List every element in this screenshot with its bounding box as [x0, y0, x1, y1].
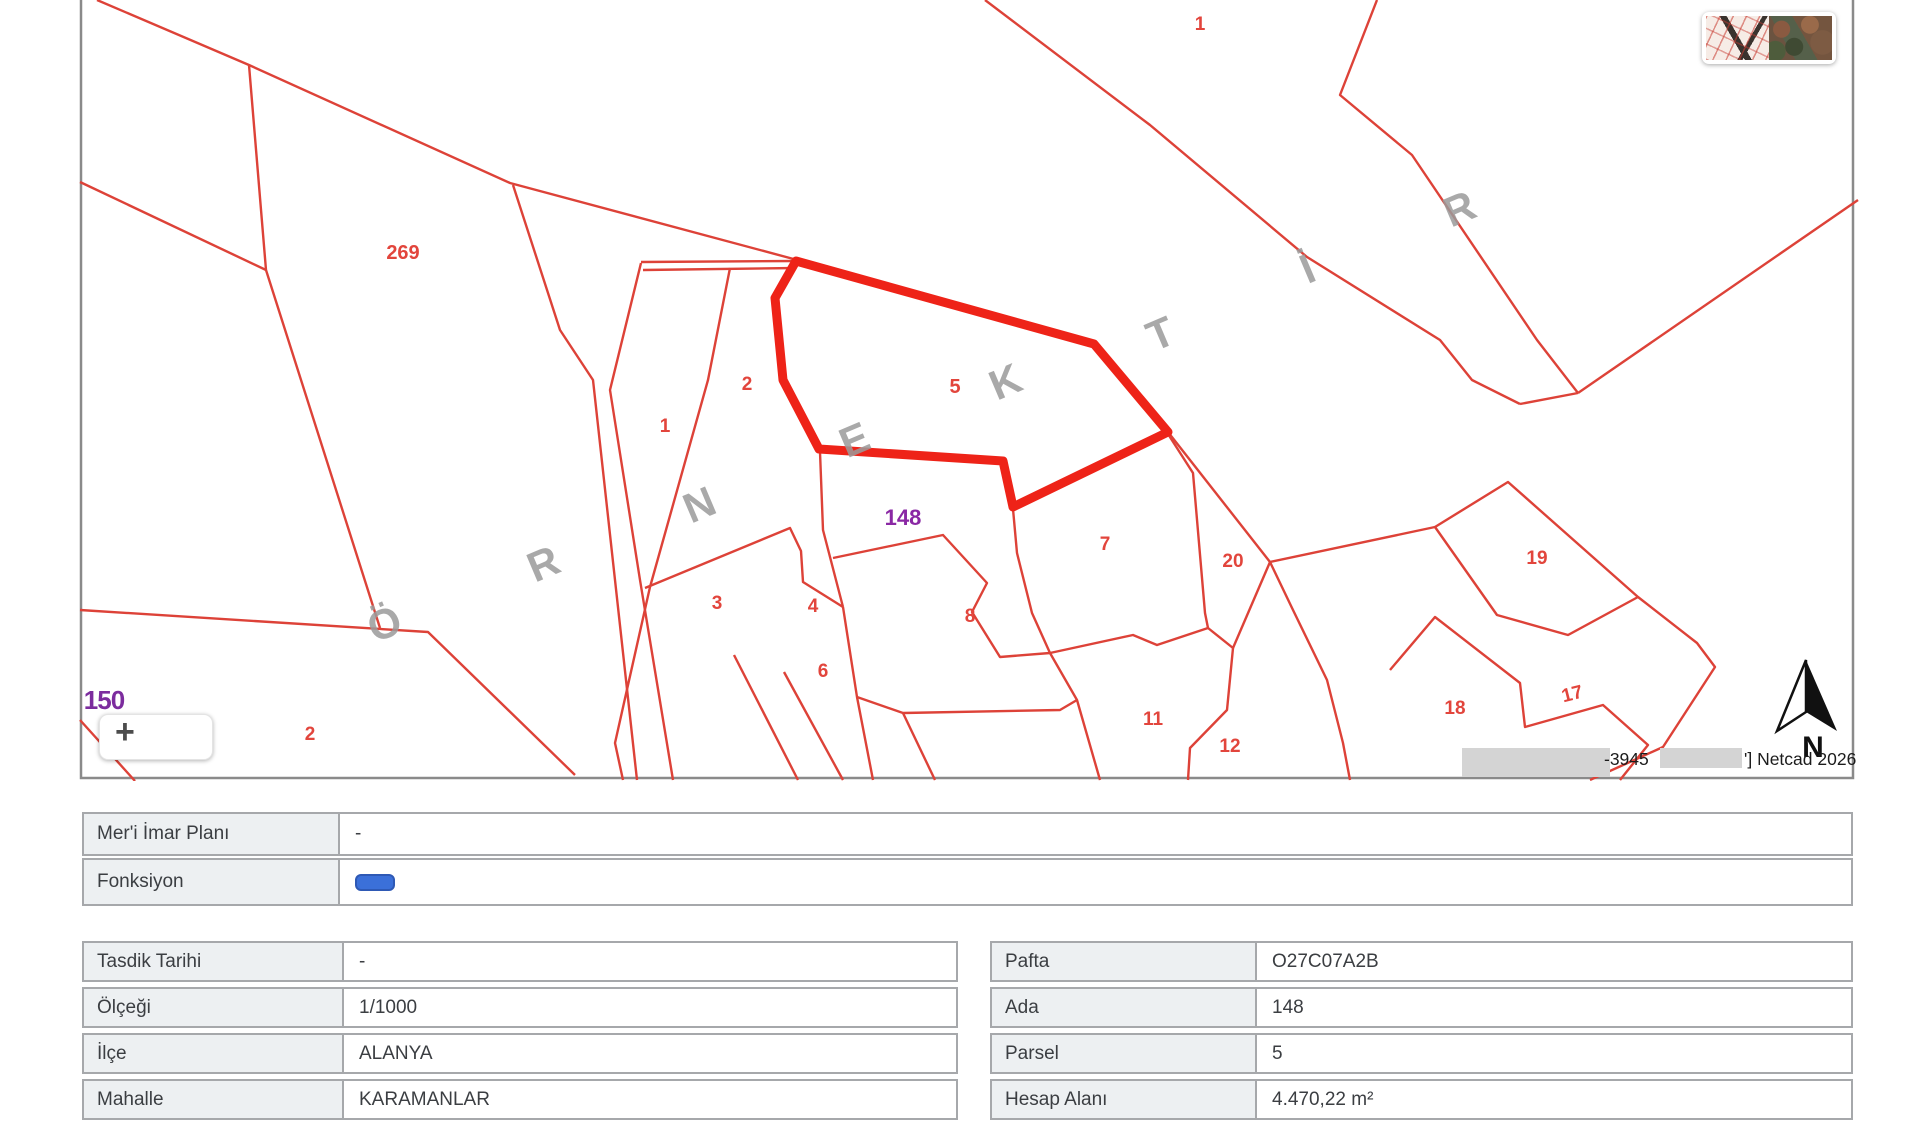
olcegi-label: Ölçeği — [84, 989, 344, 1026]
table-row: Mahalle KARAMANLAR — [82, 1079, 958, 1120]
map-attribution: -3945 '] Netcad 2026 — [1462, 748, 1856, 777]
fonksiyon-badge[interactable] — [355, 874, 395, 891]
ornektir-watermark: Ö R N E K T İ R — [360, 181, 1482, 652]
pafta-value: O27C07A2B — [1257, 943, 1851, 980]
thumbnail-satellite-half — [1769, 16, 1832, 60]
highlighted-parcel-5[interactable] — [775, 261, 1168, 507]
basemap-toggle-thumbnail[interactable] — [1702, 12, 1836, 64]
parsel-value: 5 — [1257, 1035, 1851, 1072]
table-row: İlçe ALANYA — [82, 1033, 958, 1074]
pafta-label: Pafta — [992, 943, 1257, 980]
parcel-label-20: 20 — [1222, 551, 1243, 572]
ilce-label: İlçe — [84, 1035, 344, 1072]
mahalle-value: KARAMANLAR — [344, 1081, 956, 1118]
watermark-letter: İ — [1293, 245, 1322, 293]
table-row: Ölçeği 1/1000 — [82, 987, 958, 1028]
fonksiyon-row-label: Fonksiyon — [84, 860, 340, 904]
attribution-netcad: '] Netcad 2026 — [1744, 749, 1856, 769]
watermark-letter: E — [832, 413, 876, 467]
olcegi-value: 1/1000 — [344, 989, 956, 1026]
mahalle-label: Mahalle — [84, 1081, 344, 1118]
hesap-alani-value: 4.470,22 m² — [1257, 1081, 1851, 1118]
watermark-letter: K — [982, 354, 1028, 409]
plan-row-label: Mer'i İmar Planı — [84, 814, 340, 854]
parcel-label-1-top-right: 1 — [1195, 14, 1206, 35]
parcel-label-3: 3 — [712, 593, 723, 614]
table-row: Fonksiyon — [82, 858, 1853, 906]
watermark-letter: T — [1139, 307, 1181, 360]
parcel-number-labels: 269 1 2 2 3 4 5 6 7 8 20 11 12 19 17 18 … — [305, 14, 1585, 757]
parcel-label-11: 11 — [1143, 709, 1164, 730]
cadastral-map[interactable]: Ö R N E K T İ R 269 1 2 2 3 4 5 6 7 8 20… — [0, 0, 1920, 781]
ada-label-150: 150 — [84, 685, 125, 715]
parcel-label-19: 19 — [1526, 548, 1547, 569]
ilce-value: ALANYA — [344, 1035, 956, 1072]
parcel-label-5: 5 — [949, 376, 960, 398]
parcel-label-18: 18 — [1444, 698, 1465, 719]
table-row: Pafta O27C07A2B — [990, 941, 1853, 982]
table-row: Parsel 5 — [990, 1033, 1853, 1074]
table-row: Hesap Alanı 4.470,22 m² — [990, 1079, 1853, 1120]
parcel-label-2b: 2 — [305, 724, 316, 745]
ada-value: 148 — [1257, 989, 1851, 1026]
parcel-label-4: 4 — [808, 596, 819, 617]
parcel-label-7: 7 — [1100, 534, 1111, 555]
watermark-letter: R — [520, 536, 566, 591]
parcel-label-8: 8 — [965, 606, 976, 627]
watermark-letter: N — [676, 477, 722, 532]
watermark-letter: R — [1436, 181, 1482, 236]
tasdik-tarihi-value: - — [344, 943, 956, 980]
parcel-inquiry-page: Ö R N E K T İ R 269 1 2 2 3 4 5 6 7 8 20… — [0, 0, 1920, 1132]
table-row: Tasdik Tarihi - — [82, 941, 958, 982]
tasdik-tarihi-label: Tasdik Tarihi — [84, 943, 344, 980]
parcel-boundary-lines — [80, 0, 1858, 781]
plus-icon: + — [115, 713, 135, 752]
attribution-coordinate: -3945 — [1604, 749, 1649, 769]
map-frame-border — [81, 0, 1853, 778]
zoom-in-button[interactable]: + — [99, 714, 213, 760]
parcel-label-1: 1 — [660, 416, 671, 437]
parcel-label-12: 12 — [1219, 736, 1240, 757]
thumbnail-map-half — [1706, 16, 1769, 60]
hesap-alani-label: Hesap Alanı — [992, 1081, 1257, 1118]
redaction-box — [1462, 748, 1610, 777]
ada-label-148: 148 — [885, 505, 922, 530]
table-row: Mer'i İmar Planı - — [82, 812, 1853, 856]
fonksiyon-row-value — [340, 860, 1851, 904]
ada-label: Ada — [992, 989, 1257, 1026]
watermark-letter: Ö — [360, 596, 408, 652]
parcel-label-269: 269 — [386, 242, 419, 264]
parsel-label: Parsel — [992, 1035, 1257, 1072]
redaction-box — [1660, 748, 1742, 768]
plan-row-value: - — [340, 814, 1851, 854]
table-row: Ada 148 — [990, 987, 1853, 1028]
parcel-label-17: 17 — [1560, 682, 1586, 707]
parcel-label-2: 2 — [742, 374, 753, 395]
parcel-label-6: 6 — [818, 661, 829, 682]
